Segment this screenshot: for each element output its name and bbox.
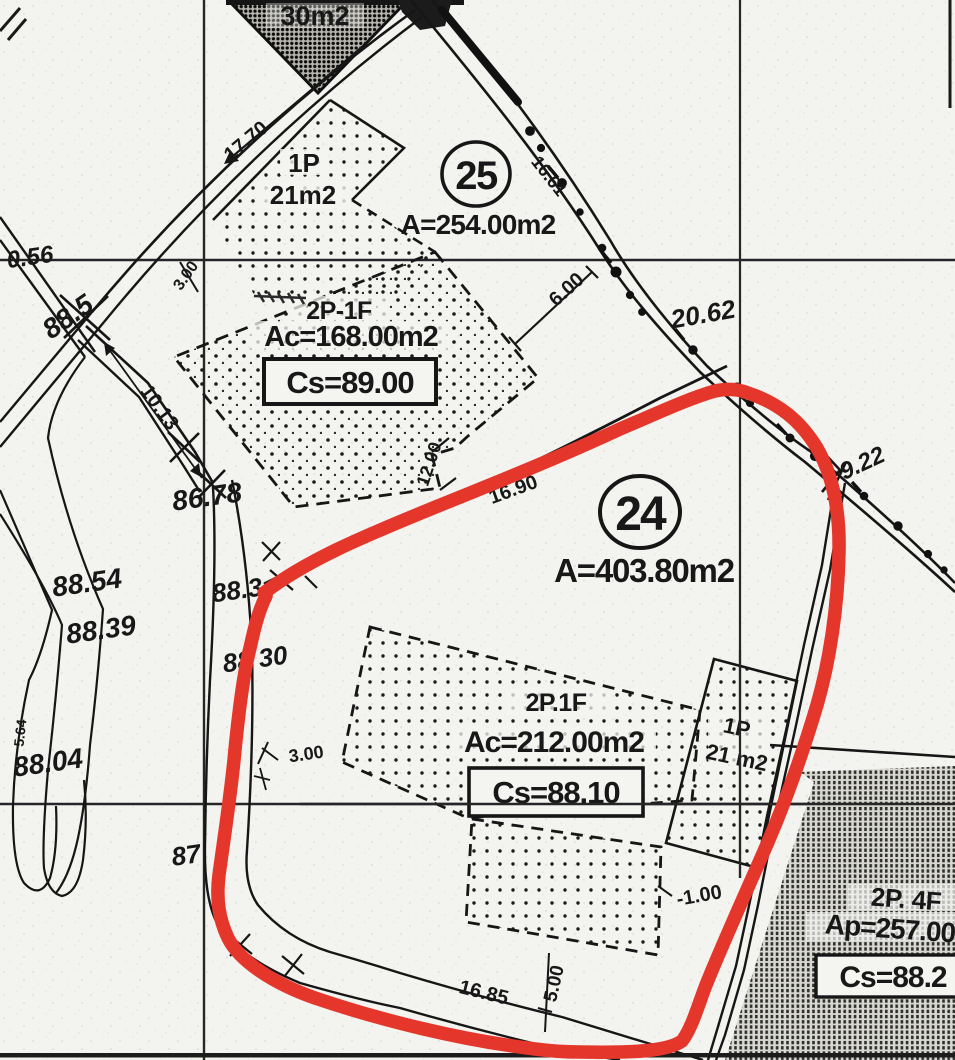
svg-text:87: 87 bbox=[170, 838, 204, 872]
svg-text:2P. 4F: 2P. 4F bbox=[870, 882, 942, 917]
svg-text:1P: 1P bbox=[288, 148, 320, 178]
svg-text:Cs=89.00: Cs=89.00 bbox=[286, 365, 413, 400]
svg-text:21m2: 21m2 bbox=[270, 180, 337, 210]
svg-text:Ac=168.00m2: Ac=168.00m2 bbox=[264, 321, 438, 353]
svg-text:Cs=88.2: Cs=88.2 bbox=[839, 961, 947, 994]
svg-text:24: 24 bbox=[615, 488, 667, 541]
svg-text:Ac=212.00m2: Ac=212.00m2 bbox=[464, 726, 644, 759]
svg-text:A=254.00m2: A=254.00m2 bbox=[401, 209, 556, 240]
svg-text:25: 25 bbox=[455, 154, 498, 198]
svg-text:A=403.80m2: A=403.80m2 bbox=[554, 552, 735, 589]
svg-text:30m2: 30m2 bbox=[280, 1, 349, 31]
svg-text:2P.1F: 2P.1F bbox=[526, 689, 587, 717]
